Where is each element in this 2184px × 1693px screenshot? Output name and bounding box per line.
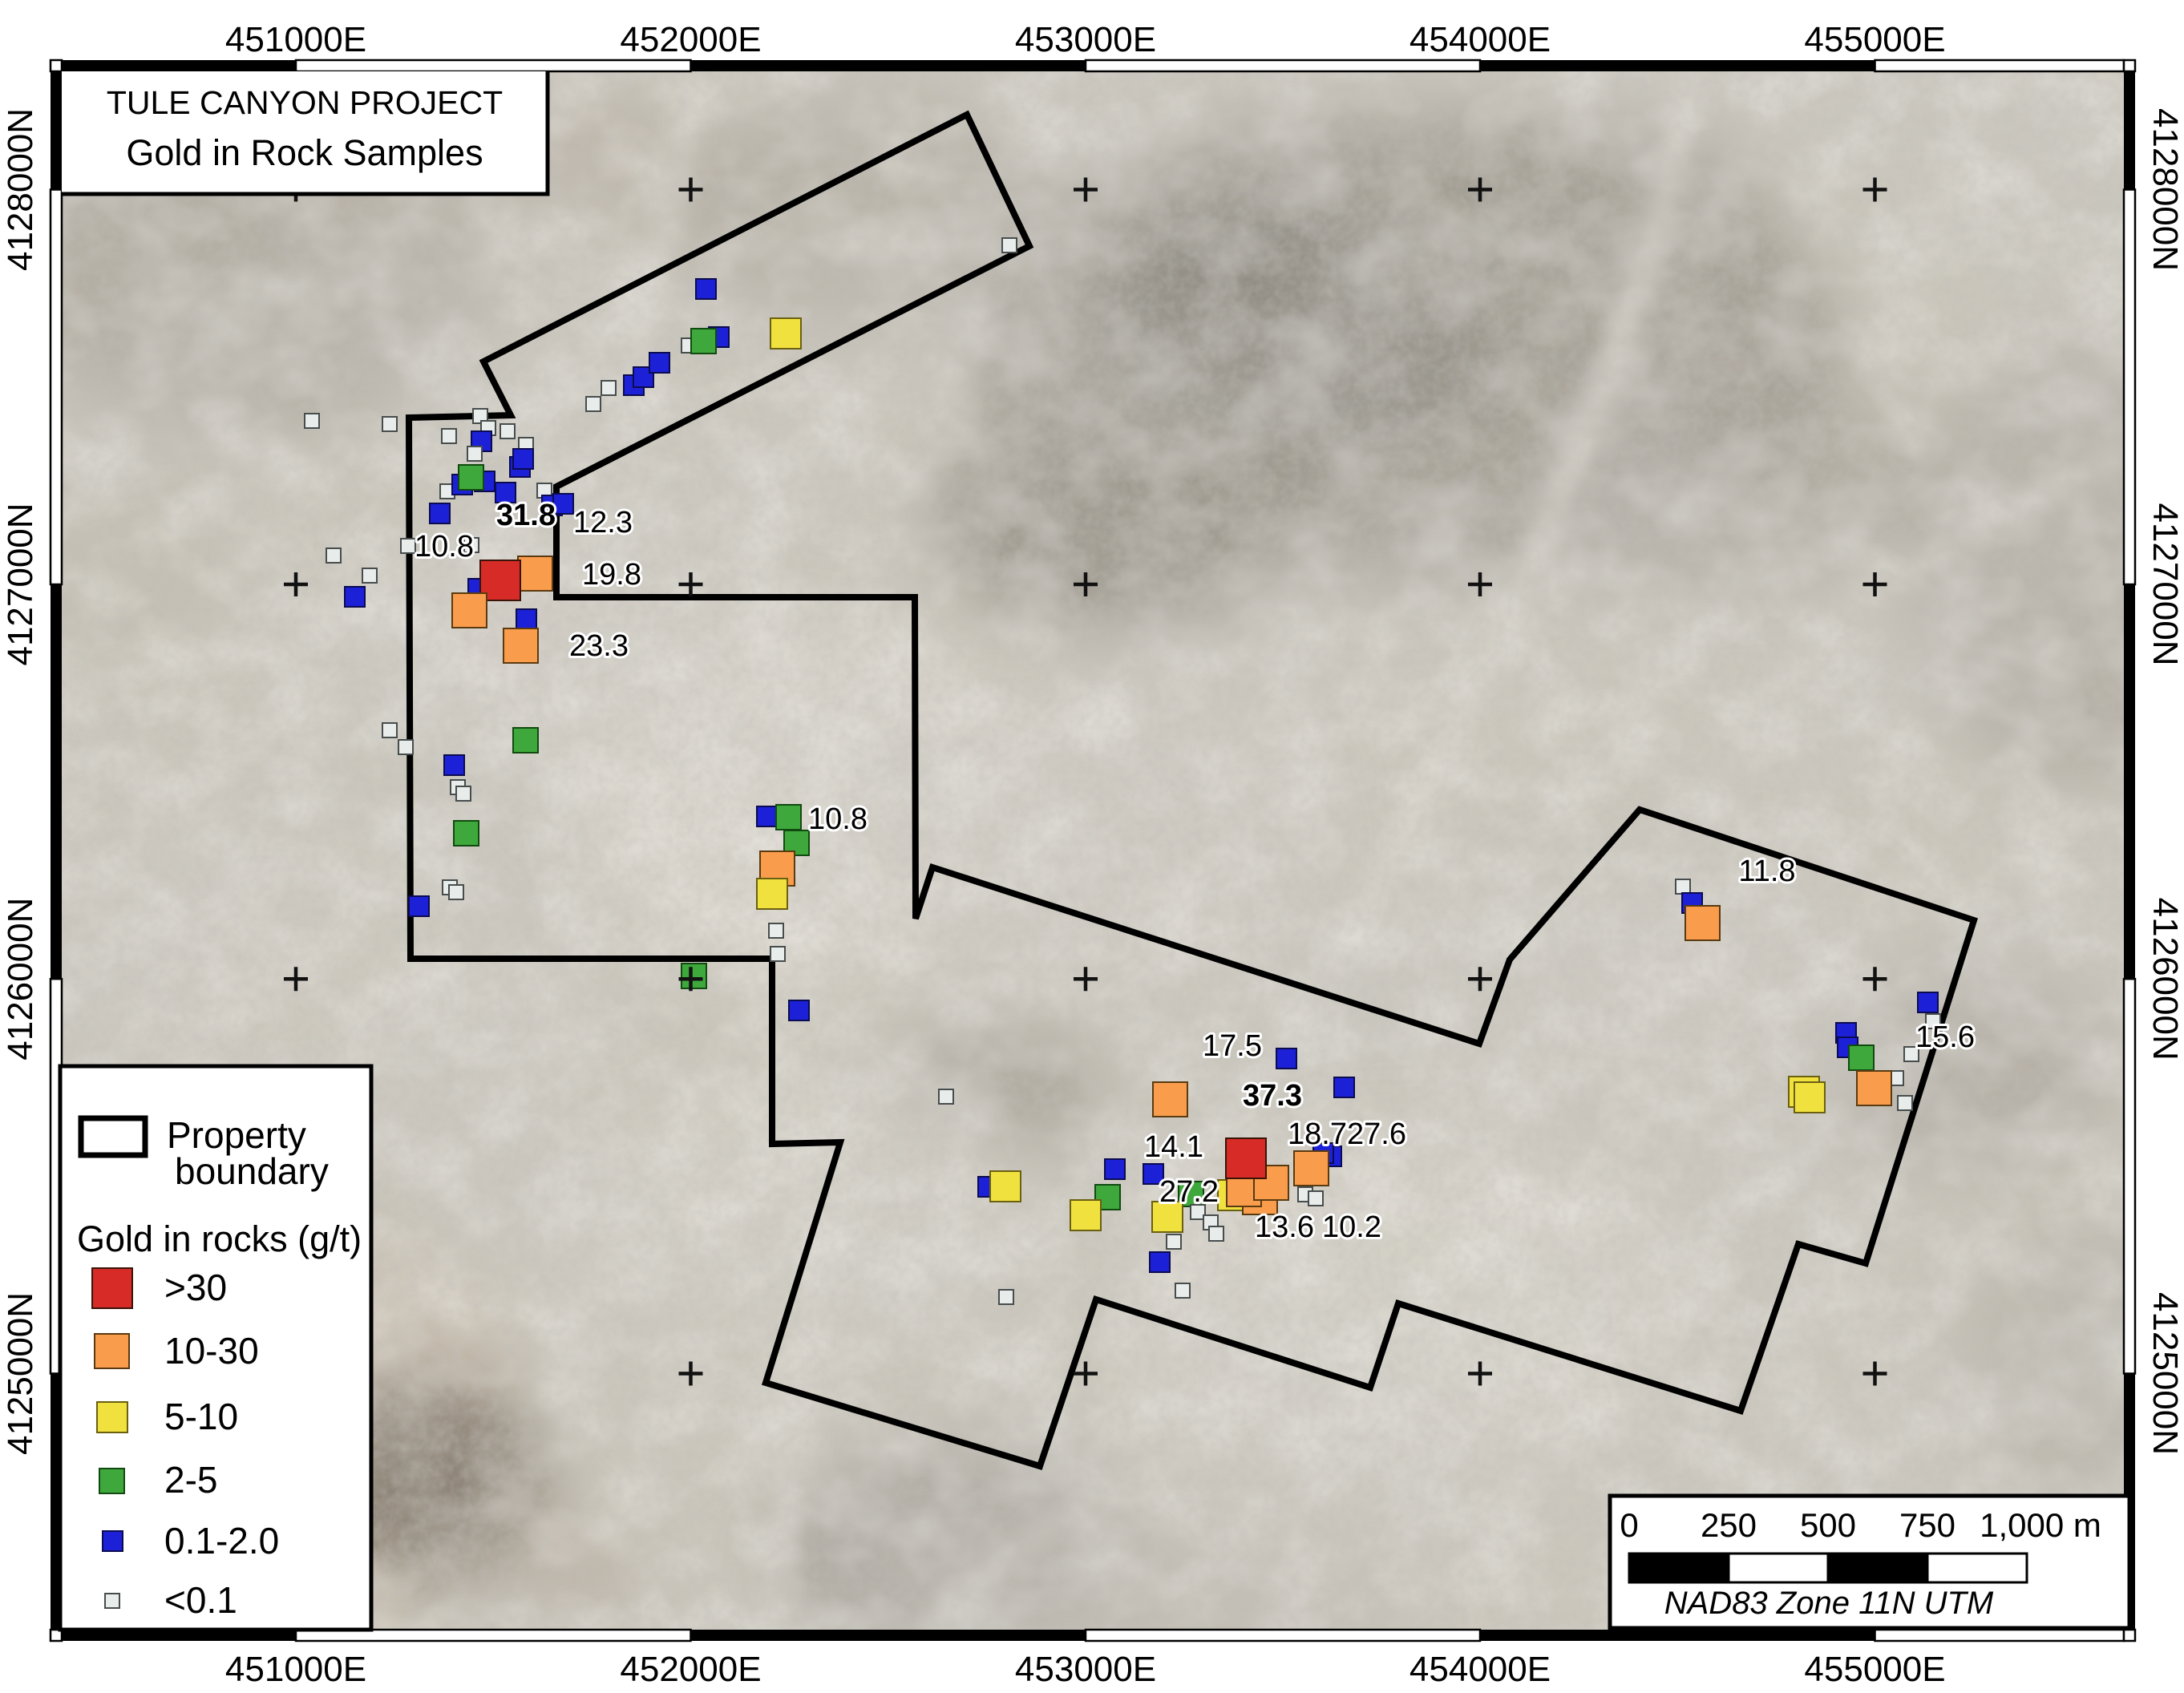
svg-text:10.8: 10.8 (808, 802, 868, 836)
svg-text:500: 500 (1800, 1506, 1856, 1544)
svg-text:455000E: 455000E (1804, 20, 1945, 59)
svg-text:451000E: 451000E (225, 20, 366, 59)
svg-text:250: 250 (1701, 1506, 1757, 1544)
svg-text:4126000N: 4126000N (2146, 898, 2184, 1061)
svg-text:2-5: 2-5 (164, 1459, 217, 1501)
svg-text:23.3: 23.3 (569, 629, 629, 663)
svg-text:11.8: 11.8 (1738, 855, 1795, 888)
svg-text:453000E: 453000E (1015, 20, 1156, 59)
svg-text:455000E: 455000E (1804, 1650, 1945, 1689)
svg-text:37.3: 37.3 (1243, 1079, 1302, 1113)
svg-text:Gold in Rock Samples: Gold in Rock Samples (126, 132, 483, 173)
svg-text:4127000N: 4127000N (1, 503, 40, 665)
svg-text:15.6: 15.6 (1915, 1020, 1975, 1054)
svg-text:453000E: 453000E (1015, 1650, 1156, 1689)
svg-text:18.7: 18.7 (1288, 1117, 1347, 1151)
svg-text:Gold in rocks (g/t): Gold in rocks (g/t) (77, 1218, 362, 1259)
svg-text:12.3: 12.3 (573, 506, 633, 539)
svg-text:452000E: 452000E (620, 1650, 761, 1689)
svg-text:4127000N: 4127000N (2146, 503, 2184, 665)
svg-text:4125000N: 4125000N (1, 1292, 40, 1455)
svg-text:10.2: 10.2 (1322, 1210, 1381, 1244)
svg-text:14.1: 14.1 (1144, 1130, 1203, 1164)
svg-text:TULE CANYON PROJECT: TULE CANYON PROJECT (107, 84, 503, 121)
svg-text:1,000 m: 1,000 m (1980, 1506, 2101, 1544)
svg-text:454000E: 454000E (1409, 20, 1551, 59)
svg-text:10.8: 10.8 (415, 530, 474, 564)
svg-text:27.6: 27.6 (1347, 1117, 1406, 1151)
svg-text:<0.1: <0.1 (164, 1579, 237, 1621)
svg-text:NAD83 Zone 11N UTM: NAD83 Zone 11N UTM (1664, 1586, 1994, 1621)
svg-text:4126000N: 4126000N (1, 898, 40, 1061)
svg-text:451000E: 451000E (225, 1650, 366, 1689)
svg-text:10-30: 10-30 (164, 1330, 259, 1372)
svg-text:5-10: 5-10 (164, 1396, 238, 1437)
svg-text:19.8: 19.8 (582, 558, 641, 592)
svg-text:454000E: 454000E (1409, 1650, 1551, 1689)
svg-text:4128000N: 4128000N (2146, 108, 2184, 271)
svg-text:4128000N: 4128000N (1, 108, 40, 271)
svg-text:17.5: 17.5 (1203, 1029, 1262, 1063)
svg-text:boundary: boundary (175, 1150, 329, 1192)
svg-text:31.8: 31.8 (496, 499, 556, 532)
svg-text:750: 750 (1899, 1506, 1955, 1544)
svg-text:27.2: 27.2 (1159, 1175, 1219, 1209)
svg-text:13.6: 13.6 (1255, 1210, 1314, 1244)
svg-text:0: 0 (1620, 1506, 1638, 1544)
svg-text:452000E: 452000E (620, 20, 761, 59)
svg-text:4125000N: 4125000N (2146, 1292, 2184, 1455)
svg-text:0.1-2.0: 0.1-2.0 (164, 1520, 279, 1562)
svg-text:>30: >30 (164, 1267, 227, 1308)
